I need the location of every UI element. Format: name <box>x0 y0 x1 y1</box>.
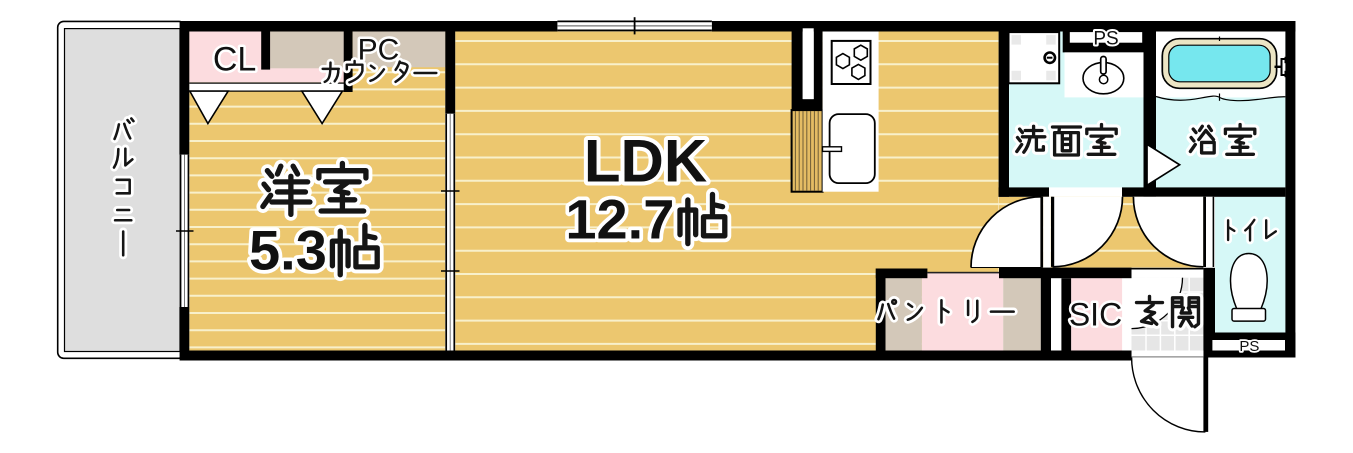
svg-text:12.7: 12.7 <box>565 188 674 251</box>
svg-text:PS: PS <box>1239 338 1259 355</box>
svg-text:SIC: SIC <box>1069 296 1122 332</box>
svg-text:PS: PS <box>1093 28 1118 49</box>
svg-text:CL: CL <box>213 41 256 79</box>
svg-text:LDK: LDK <box>584 127 707 194</box>
svg-text:5.3: 5.3 <box>249 219 327 282</box>
